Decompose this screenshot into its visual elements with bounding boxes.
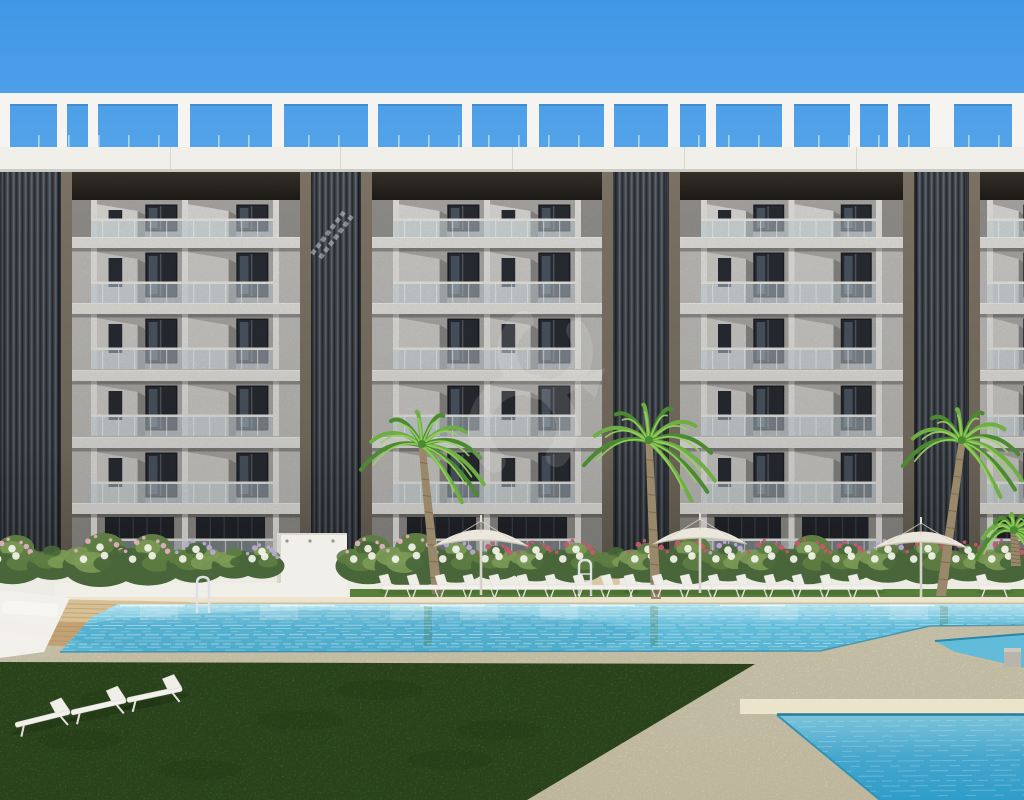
- apartment-complex-render: [0, 0, 1024, 800]
- render-canvas: [0, 0, 1024, 800]
